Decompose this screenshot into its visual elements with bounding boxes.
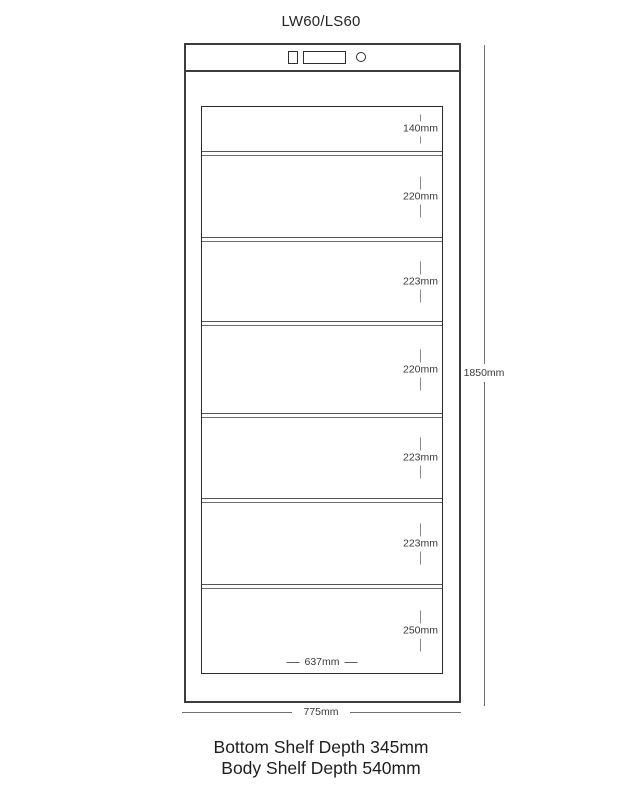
dimension-tick	[420, 551, 421, 564]
dimension-tick	[420, 438, 421, 451]
shelf-5-dimension: 223mm	[403, 438, 438, 479]
shelf-3-height-label: 223mm	[403, 275, 438, 288]
inner-width-dimension: 637mm	[286, 655, 357, 670]
shelf-2-dimension: 220mm	[403, 176, 438, 217]
cabinet-outline: 140mm 220mm 223mm	[184, 43, 461, 703]
depth-notes: Bottom Shelf Depth 345mm Body Shelf Dept…	[0, 737, 642, 779]
keypad-icon	[288, 51, 298, 64]
shelf-compartment-1: 140mm	[202, 107, 442, 151]
dimension-tick	[420, 261, 421, 274]
shelf-compartment-5: 223mm	[202, 418, 442, 498]
overall-width-label: 775mm	[292, 705, 350, 719]
shelf-5-height-label: 223mm	[403, 452, 438, 465]
overall-height-label: 1850mm	[461, 364, 507, 382]
shelf-compartment-box: 140mm 220mm 223mm	[201, 106, 443, 674]
dimension-dash	[286, 662, 299, 663]
dimension-tick	[420, 115, 421, 122]
shelf-2-height-label: 220mm	[403, 190, 438, 203]
dimension-tick	[420, 176, 421, 189]
shelf-compartment-2: 220mm	[202, 156, 442, 237]
dimension-tick	[420, 639, 421, 652]
lock-dial-icon	[356, 52, 366, 62]
dimension-tick	[420, 204, 421, 217]
bottom-shelf-depth-note: Bottom Shelf Depth 345mm	[0, 737, 642, 758]
shelf-compartment-7: 250mm 637mm	[202, 589, 442, 673]
dimension-tick	[420, 289, 421, 302]
model-title: LW60/LS60	[0, 13, 642, 30]
shelf-6-height-label: 223mm	[403, 537, 438, 550]
inner-width-label: 637mm	[304, 656, 339, 669]
body-shelf-depth-note: Body Shelf Depth 540mm	[0, 758, 642, 779]
shelf-7-dimension: 250mm	[403, 611, 438, 652]
dimension-tick	[420, 377, 421, 390]
dimension-tick	[420, 137, 421, 144]
dimension-tick	[420, 466, 421, 479]
shelf-7-height-label: 250mm	[403, 625, 438, 638]
shelf-compartment-3: 223mm	[202, 242, 442, 321]
header-divider-line	[186, 70, 459, 72]
shelf-1-dimension: 140mm	[403, 115, 438, 144]
shelf-3-dimension: 223mm	[403, 261, 438, 302]
shelf-compartment-4: 220mm	[202, 326, 442, 413]
shelf-1-height-label: 140mm	[403, 123, 438, 136]
dimension-tick	[420, 349, 421, 362]
shelf-compartment-6: 223mm	[202, 503, 442, 584]
shelf-4-height-label: 220mm	[403, 363, 438, 376]
dimension-tick	[420, 523, 421, 536]
display-panel-icon	[303, 51, 346, 64]
shelf-4-dimension: 220mm	[403, 349, 438, 390]
dimension-dash	[345, 662, 358, 663]
dimension-tick	[420, 611, 421, 624]
diagram-page: LW60/LS60 140mm 220mm	[0, 0, 642, 802]
shelf-6-dimension: 223mm	[403, 523, 438, 564]
